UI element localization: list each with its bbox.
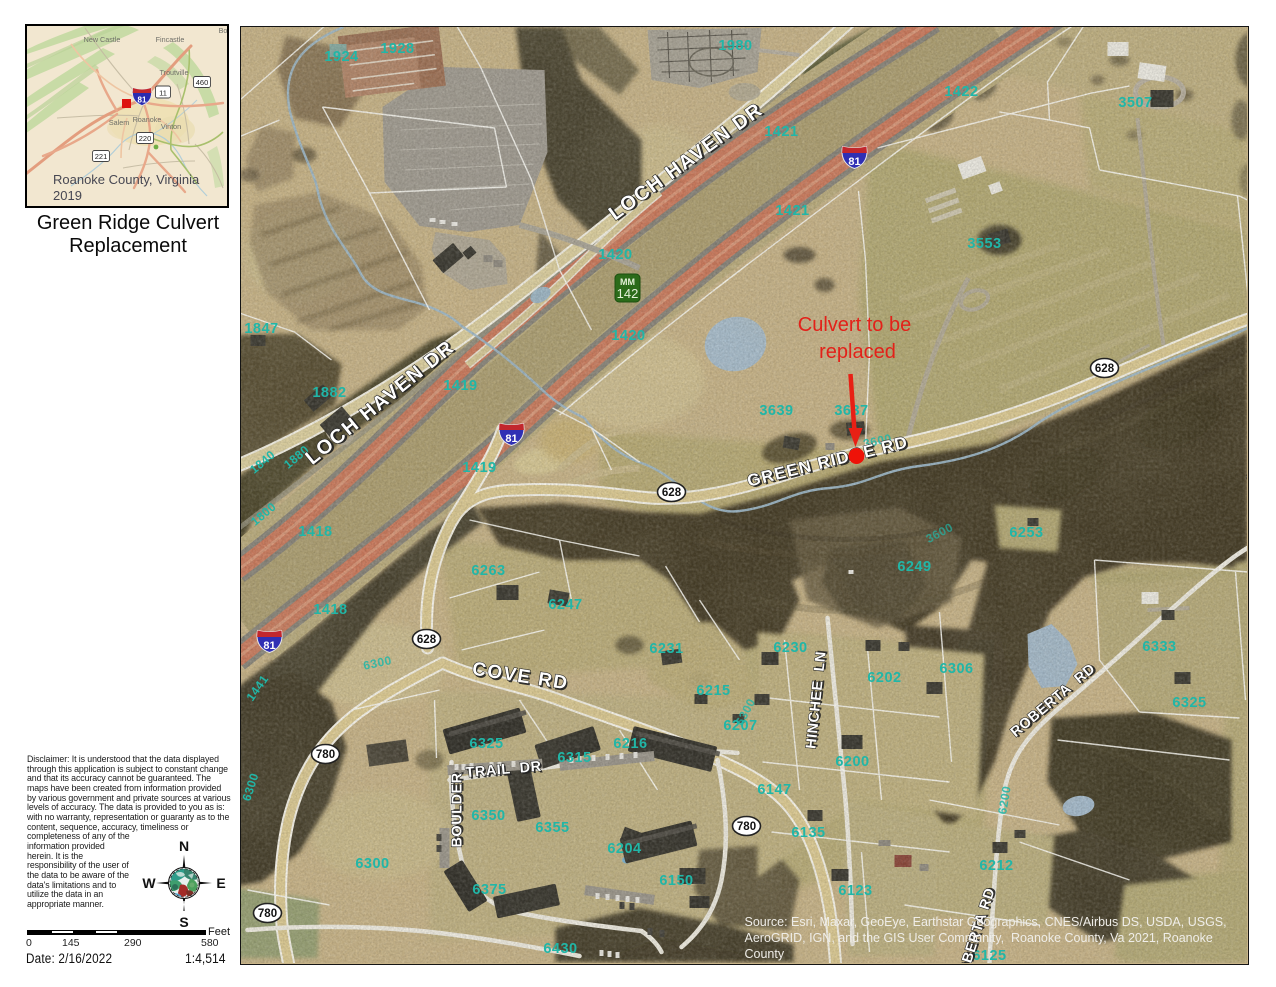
svg-text:221: 221 [95, 152, 108, 161]
svg-text:1420: 1420 [611, 328, 645, 344]
svg-text:AeroGRID, IGN, and the GIS Use: AeroGRID, IGN, and the GIS User Communit… [745, 931, 1213, 945]
svg-text:6430: 6430 [543, 941, 577, 957]
svg-text:3639: 3639 [759, 403, 793, 419]
svg-text:81: 81 [138, 96, 147, 105]
svg-text:628: 628 [1095, 363, 1115, 375]
svg-text:1980: 1980 [718, 38, 752, 54]
svg-text:142: 142 [617, 286, 639, 301]
svg-text:1847: 1847 [244, 321, 278, 337]
svg-text:1421: 1421 [764, 124, 798, 140]
svg-text:Bo: Bo [219, 26, 227, 35]
svg-text:6355: 6355 [535, 820, 569, 836]
svg-text:replaced: replaced [819, 341, 896, 363]
svg-text:460: 460 [196, 78, 209, 87]
svg-text:6247: 6247 [548, 597, 582, 613]
svg-text:6315: 6315 [557, 750, 591, 766]
svg-text:Fincastle: Fincastle [156, 35, 185, 44]
svg-text:6215: 6215 [696, 683, 730, 699]
svg-text:County: County [745, 947, 785, 961]
svg-text:6212: 6212 [979, 858, 1013, 874]
svg-text:1418: 1418 [298, 524, 332, 540]
svg-text:6253: 6253 [1009, 525, 1043, 541]
svg-text:6263: 6263 [471, 563, 505, 579]
svg-text:6300: 6300 [355, 856, 389, 872]
svg-text:2019: 2019 [53, 188, 82, 203]
svg-text:6249: 6249 [897, 559, 931, 575]
svg-text:BOULDER: BOULDER [450, 772, 466, 847]
svg-text:6325: 6325 [1172, 695, 1206, 711]
svg-text:1419: 1419 [443, 378, 477, 394]
svg-text:780: 780 [316, 749, 335, 761]
svg-text:Culvert to be: Culvert to be [798, 314, 911, 336]
svg-text:220: 220 [139, 134, 152, 143]
svg-text:6202: 6202 [867, 670, 901, 686]
svg-text:Salem: Salem [109, 118, 129, 127]
svg-text:6150: 6150 [659, 873, 693, 889]
svg-text:6200: 6200 [835, 754, 869, 770]
svg-text:6204: 6204 [607, 841, 641, 857]
svg-text:1924: 1924 [324, 49, 358, 65]
svg-text:1421: 1421 [775, 203, 809, 219]
svg-text:628: 628 [417, 634, 437, 646]
svg-text:3553: 3553 [967, 236, 1001, 252]
svg-text:780: 780 [737, 821, 756, 833]
svg-text:1928: 1928 [380, 41, 414, 57]
svg-text:1418: 1418 [313, 602, 347, 618]
svg-text:6325: 6325 [469, 736, 503, 752]
svg-text:3507: 3507 [1118, 95, 1152, 111]
svg-text:N: N [179, 838, 189, 854]
svg-text:6230: 6230 [773, 640, 807, 656]
svg-text:1422: 1422 [944, 84, 978, 100]
svg-text:6216: 6216 [613, 736, 647, 752]
svg-text:Roanoke: Roanoke [133, 115, 162, 124]
svg-text:W: W [142, 875, 156, 891]
svg-text:6333: 6333 [1142, 639, 1176, 655]
svg-text:6350: 6350 [471, 808, 505, 824]
svg-text:1420: 1420 [598, 247, 632, 263]
svg-text:6231: 6231 [649, 641, 683, 657]
svg-text:11: 11 [159, 88, 167, 97]
svg-text:Troutville: Troutville [160, 68, 189, 77]
svg-text:Roanoke County, Virginia: Roanoke County, Virginia [53, 172, 200, 187]
svg-text:780: 780 [258, 908, 277, 920]
svg-text:6375: 6375 [472, 882, 506, 898]
svg-text:Source: Esri, Maxar, GeoEye, E: Source: Esri, Maxar, GeoEye, Earthstar G… [745, 915, 1227, 929]
svg-text:6135: 6135 [791, 825, 825, 841]
svg-text:Vinton: Vinton [161, 122, 181, 131]
svg-text:E: E [216, 875, 225, 891]
svg-text:1419: 1419 [462, 460, 496, 476]
svg-text:S: S [179, 914, 188, 930]
svg-text:6306: 6306 [939, 661, 973, 677]
svg-text:6147: 6147 [757, 782, 791, 798]
svg-text:1882: 1882 [312, 385, 346, 401]
svg-text:628: 628 [662, 487, 682, 499]
svg-text:6123: 6123 [838, 883, 872, 899]
svg-text:New Castle: New Castle [84, 35, 121, 44]
